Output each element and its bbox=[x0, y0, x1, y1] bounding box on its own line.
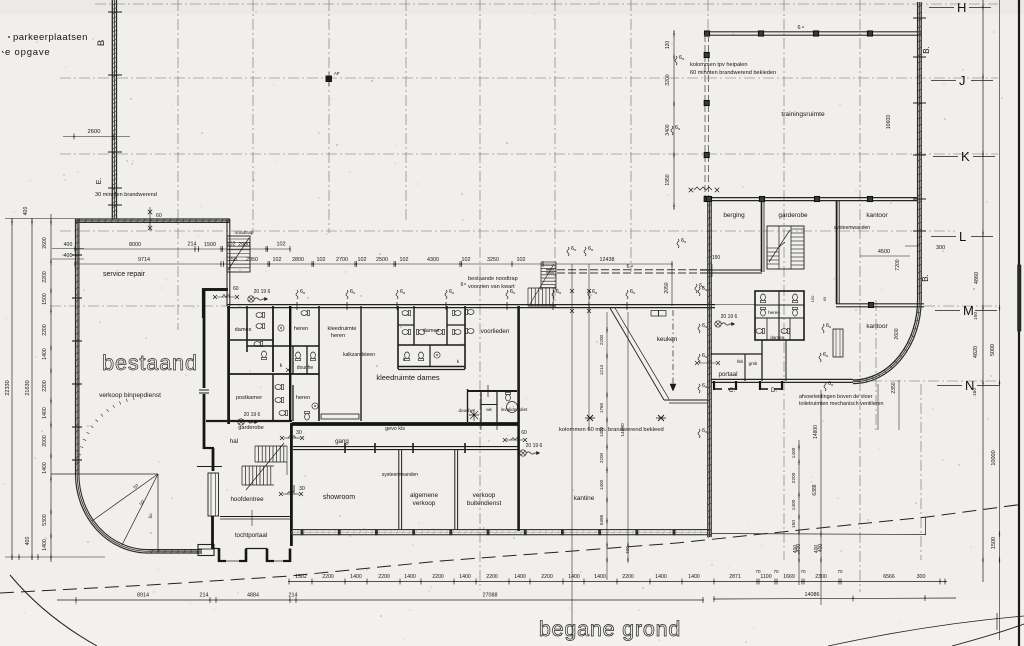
svg-text:2300: 2300 bbox=[815, 574, 827, 580]
svg-text:kantoor: kantoor bbox=[866, 212, 888, 219]
svg-text:214: 214 bbox=[289, 593, 298, 599]
svg-text:hal: hal bbox=[230, 438, 238, 445]
svg-text:2600: 2600 bbox=[42, 237, 48, 249]
svg-text:3400: 3400 bbox=[665, 124, 671, 135]
svg-text:4500: 4500 bbox=[878, 249, 890, 255]
svg-text:showroom: showroom bbox=[323, 494, 355, 501]
svg-text:160: 160 bbox=[972, 388, 978, 396]
svg-text:C.: C. bbox=[729, 388, 735, 394]
svg-text:2200: 2200 bbox=[378, 574, 390, 580]
svg-text:1400: 1400 bbox=[42, 462, 48, 474]
svg-text:2050: 2050 bbox=[664, 282, 670, 293]
svg-text:keuken: keuken bbox=[657, 336, 678, 343]
svg-text:2700: 2700 bbox=[336, 257, 348, 263]
svg-text:1400: 1400 bbox=[459, 574, 471, 580]
svg-text:heren: heren bbox=[331, 333, 345, 339]
svg-text:300: 300 bbox=[917, 574, 926, 580]
svg-text:2900: 2900 bbox=[238, 242, 250, 248]
svg-text:20 19 6: 20 19 6 bbox=[721, 314, 738, 320]
svg-text:wk: wk bbox=[486, 407, 492, 412]
svg-text:1400: 1400 bbox=[514, 574, 526, 580]
svg-text:150: 150 bbox=[712, 255, 721, 261]
svg-text:voorlieden: voorlieden bbox=[481, 328, 510, 335]
svg-text:12438: 12438 bbox=[600, 257, 615, 263]
svg-text:1400: 1400 bbox=[599, 479, 604, 490]
svg-text:voorzien van kwart: voorzien van kwart bbox=[468, 284, 515, 290]
svg-text:2200: 2200 bbox=[486, 574, 498, 580]
svg-text:2200: 2200 bbox=[791, 472, 797, 483]
svg-text:verkoop binnendienst: verkoop binnendienst bbox=[99, 392, 161, 399]
svg-text:4860: 4860 bbox=[974, 272, 980, 284]
svg-text:AP: AP bbox=[334, 71, 340, 76]
svg-text:K: K bbox=[961, 149, 970, 164]
svg-text:102: 102 bbox=[277, 242, 286, 248]
svg-text:dames: dames bbox=[423, 328, 440, 334]
svg-text:400: 400 bbox=[814, 545, 820, 554]
svg-text:2200: 2200 bbox=[599, 452, 604, 463]
svg-text:2800: 2800 bbox=[292, 257, 304, 263]
svg-text:begane grond: begane grond bbox=[539, 617, 681, 641]
svg-text:400: 400 bbox=[23, 207, 29, 216]
svg-text:gevo kls: gevo kls bbox=[385, 426, 405, 432]
svg-text:22330: 22330 bbox=[5, 380, 11, 395]
svg-text:2200: 2200 bbox=[42, 324, 48, 336]
svg-text:kolommen 60 min. brandwerend b: kolommen 60 min. brandwerend bekleed bbox=[559, 427, 664, 433]
svg-text:60: 60 bbox=[521, 430, 527, 436]
svg-text:algemene: algemene bbox=[410, 492, 439, 499]
svg-text:2200: 2200 bbox=[432, 574, 444, 580]
svg-text:dames: dames bbox=[770, 335, 784, 340]
svg-text:4300: 4300 bbox=[427, 257, 439, 263]
svg-text:400: 400 bbox=[793, 545, 799, 554]
svg-text:dames: dames bbox=[235, 327, 252, 333]
svg-text:60: 60 bbox=[233, 286, 239, 292]
svg-text:bestaand: bestaand bbox=[102, 351, 198, 375]
svg-text:8000: 8000 bbox=[129, 242, 141, 248]
svg-text:J: J bbox=[959, 73, 966, 88]
svg-text:e opgave: e opgave bbox=[5, 47, 51, 58]
svg-text:21630: 21630 bbox=[25, 380, 31, 395]
svg-text:2200: 2200 bbox=[322, 574, 334, 580]
svg-text:14800: 14800 bbox=[620, 423, 626, 437]
svg-text:60: 60 bbox=[156, 213, 162, 219]
svg-text:trainingsruimte: trainingsruimte bbox=[781, 111, 825, 118]
svg-text:2200: 2200 bbox=[541, 574, 553, 580]
svg-text:30: 30 bbox=[296, 430, 302, 436]
svg-text:H: H bbox=[957, 0, 966, 15]
svg-text:heren: heren bbox=[296, 395, 310, 401]
svg-text:400: 400 bbox=[64, 242, 73, 248]
svg-text:3250: 3250 bbox=[487, 257, 499, 263]
svg-text:afvoerleidingen boven de vloer: afvoerleidingen boven de vloer bbox=[799, 394, 873, 400]
svg-text:1502: 1502 bbox=[295, 574, 307, 580]
svg-text:70: 70 bbox=[800, 569, 806, 574]
svg-text:buitendienst: buitendienst bbox=[467, 500, 502, 507]
svg-text:1500: 1500 bbox=[42, 293, 48, 305]
svg-text:102: 102 bbox=[462, 257, 471, 263]
svg-text:1950: 1950 bbox=[665, 174, 671, 185]
svg-text:kolommen tpv heipalen: kolommen tpv heipalen bbox=[690, 62, 748, 68]
svg-text:kleedruimte: kleedruimte bbox=[328, 326, 357, 332]
svg-text:6: 6 bbox=[626, 264, 629, 270]
svg-text:postkamer: postkamer bbox=[236, 395, 262, 401]
svg-text:D.: D. bbox=[771, 388, 777, 394]
svg-text:2350: 2350 bbox=[891, 382, 897, 393]
svg-text:2000: 2000 bbox=[42, 435, 48, 447]
svg-text:30: 30 bbox=[299, 486, 305, 492]
svg-text:60: 60 bbox=[822, 296, 827, 301]
svg-text:70: 70 bbox=[773, 569, 779, 574]
svg-text:garderobe: garderobe bbox=[238, 425, 264, 431]
svg-text:1669: 1669 bbox=[783, 574, 795, 580]
svg-text:toiletruimten mechanisch venti: toiletruimten mechanisch ventileren bbox=[799, 401, 884, 407]
svg-text:M: M bbox=[963, 303, 974, 318]
svg-text:5000: 5000 bbox=[990, 344, 996, 356]
svg-text:20 19 6: 20 19 6 bbox=[526, 443, 543, 449]
svg-text:10600: 10600 bbox=[886, 115, 892, 130]
svg-text:20 19 6: 20 19 6 bbox=[244, 412, 261, 418]
svg-text:1214: 1214 bbox=[599, 364, 604, 375]
svg-text:6388: 6388 bbox=[812, 484, 818, 495]
svg-text:garderobe: garderobe bbox=[778, 212, 808, 219]
svg-text:kantine: kantine bbox=[574, 495, 595, 502]
svg-text:kalkzandsteen: kalkzandsteen bbox=[343, 352, 375, 358]
svg-text:2200: 2200 bbox=[599, 334, 604, 345]
svg-text:102: 102 bbox=[517, 257, 526, 263]
svg-text:1400: 1400 bbox=[42, 407, 48, 419]
svg-text:3200: 3200 bbox=[665, 74, 671, 85]
svg-text:1500: 1500 bbox=[991, 537, 997, 549]
svg-text:1400: 1400 bbox=[791, 499, 797, 510]
svg-text:1400: 1400 bbox=[599, 426, 604, 437]
svg-text:5o: 5o bbox=[148, 513, 153, 519]
svg-text:2200: 2200 bbox=[42, 380, 48, 392]
svg-text:70: 70 bbox=[755, 569, 761, 574]
svg-text:102: 102 bbox=[358, 257, 367, 263]
svg-text:bestaande noodtrap: bestaande noodtrap bbox=[468, 276, 518, 282]
svg-text:4884: 4884 bbox=[247, 593, 259, 599]
svg-text:1400: 1400 bbox=[350, 574, 362, 580]
svg-text:kleedruimte dames: kleedruimte dames bbox=[376, 373, 440, 382]
svg-text:1100: 1100 bbox=[760, 574, 771, 580]
svg-text:invalide toilet: invalide toilet bbox=[501, 407, 528, 412]
svg-text:1400: 1400 bbox=[688, 574, 700, 580]
svg-text:verkoop: verkoop bbox=[413, 500, 436, 507]
svg-text:60 minuten brandwerend beklede: 60 minuten brandwerend bekleden bbox=[690, 70, 776, 76]
svg-text:7200: 7200 bbox=[895, 259, 901, 270]
svg-text:heren: heren bbox=[768, 310, 780, 315]
svg-text:150: 150 bbox=[791, 520, 797, 528]
svg-text:L: L bbox=[959, 229, 966, 244]
svg-text:1400: 1400 bbox=[594, 574, 606, 580]
svg-text:portaal: portaal bbox=[719, 371, 738, 378]
svg-text:300: 300 bbox=[936, 245, 945, 251]
svg-text:4820: 4820 bbox=[973, 346, 979, 358]
svg-text:400: 400 bbox=[64, 253, 73, 259]
svg-text:20 19 6: 20 19 6 bbox=[254, 289, 271, 295]
svg-text:102: 102 bbox=[317, 257, 326, 263]
svg-text:6: 6 bbox=[797, 25, 800, 31]
svg-text:14800: 14800 bbox=[813, 425, 819, 439]
svg-text:2871: 2871 bbox=[729, 574, 741, 580]
svg-text:gang: gang bbox=[335, 438, 349, 445]
svg-text:2600: 2600 bbox=[88, 129, 101, 135]
svg-text:14086: 14086 bbox=[805, 592, 820, 598]
svg-text:9714: 9714 bbox=[138, 257, 150, 263]
svg-text:150: 150 bbox=[228, 257, 237, 263]
svg-text:2200: 2200 bbox=[42, 271, 48, 283]
svg-text:hoofdentree: hoofdentree bbox=[230, 496, 264, 503]
svg-text:B.: B. bbox=[922, 46, 931, 54]
svg-text:2950: 2950 bbox=[246, 257, 258, 263]
svg-text:1760: 1760 bbox=[599, 402, 604, 413]
svg-text:douche: douche bbox=[297, 365, 314, 371]
svg-text:1400: 1400 bbox=[568, 574, 580, 580]
svg-text:10000: 10000 bbox=[991, 450, 997, 465]
svg-text:verkoop: verkoop bbox=[473, 492, 496, 499]
svg-text:102: 102 bbox=[227, 242, 236, 248]
svg-text:heren: heren bbox=[294, 326, 308, 332]
svg-text:6566: 6566 bbox=[883, 574, 895, 580]
svg-text:B: B bbox=[96, 40, 107, 46]
svg-text:2200: 2200 bbox=[622, 574, 634, 580]
svg-text:1400: 1400 bbox=[404, 574, 416, 580]
svg-text:service repair: service repair bbox=[103, 271, 146, 278]
svg-text:120: 120 bbox=[665, 41, 671, 50]
svg-text:400: 400 bbox=[25, 537, 31, 546]
svg-text:70: 70 bbox=[837, 569, 843, 574]
svg-text:214: 214 bbox=[200, 593, 209, 599]
svg-text:27088: 27088 bbox=[483, 593, 498, 599]
svg-text:berging: berging bbox=[723, 212, 745, 219]
svg-text:kantoor: kantoor bbox=[866, 323, 888, 330]
svg-text:E.: E. bbox=[96, 178, 103, 185]
svg-text:5398: 5398 bbox=[599, 514, 604, 525]
svg-text:30 minuten brandwerend: 30 minuten brandwerend bbox=[95, 192, 157, 198]
svg-text:150: 150 bbox=[973, 312, 979, 320]
svg-text:B.: B. bbox=[921, 274, 930, 282]
svg-text:lmk: lmk bbox=[737, 359, 744, 364]
svg-text:1500: 1500 bbox=[204, 242, 216, 248]
svg-text:8914: 8914 bbox=[137, 593, 149, 599]
svg-text:5300: 5300 bbox=[42, 514, 48, 526]
svg-text:2500: 2500 bbox=[376, 257, 388, 263]
svg-text:o: o bbox=[464, 282, 466, 286]
svg-text:parkeerplaatsen: parkeerplaatsen bbox=[13, 32, 88, 43]
svg-text:systeemwanden: systeemwanden bbox=[382, 472, 418, 478]
svg-text:2600: 2600 bbox=[894, 328, 900, 339]
svg-text:1400: 1400 bbox=[655, 574, 667, 580]
svg-text:gmk: gmk bbox=[749, 361, 758, 366]
svg-text:1400: 1400 bbox=[42, 348, 48, 360]
svg-text:214: 214 bbox=[188, 242, 197, 248]
svg-text:102: 102 bbox=[273, 257, 282, 263]
svg-text:1400: 1400 bbox=[791, 447, 797, 458]
svg-text:noodtrap: noodtrap bbox=[235, 230, 254, 236]
svg-text:tochtportaal: tochtportaal bbox=[235, 532, 267, 539]
svg-text:1400: 1400 bbox=[42, 539, 48, 551]
svg-text:150: 150 bbox=[810, 295, 815, 302]
